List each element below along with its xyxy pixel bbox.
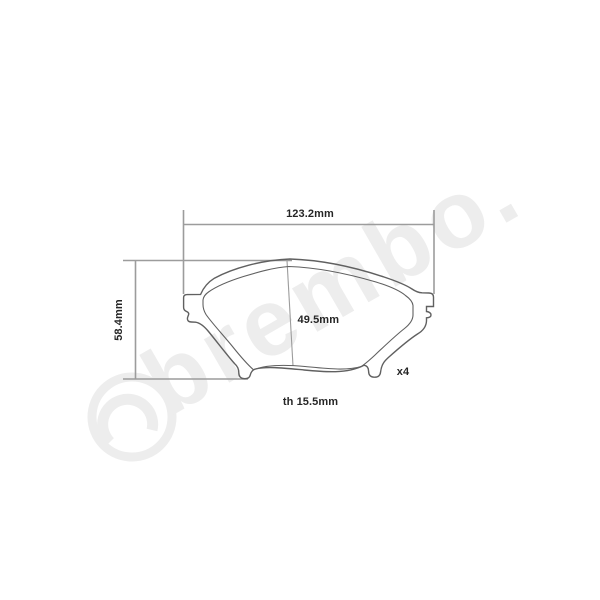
- thickness-label: th 15.5mm: [283, 396, 338, 408]
- brake-pad-technical-drawing: brembo. 123.2mm 58.4mm 49.5mm: [0, 0, 600, 600]
- watermark-brand-text: brembo.: [126, 136, 540, 436]
- quantity-label: x4: [397, 366, 410, 378]
- pad-height-label: 49.5mm: [298, 314, 340, 326]
- drawing-sheet: brembo. 123.2mm 58.4mm 49.5mm: [0, 0, 600, 600]
- watermark: brembo.: [92, 136, 539, 457]
- overall-width-label: 123.2mm: [286, 208, 334, 220]
- overall-height-label: 58.4mm: [113, 299, 125, 341]
- logo-swirl: [103, 399, 153, 442]
